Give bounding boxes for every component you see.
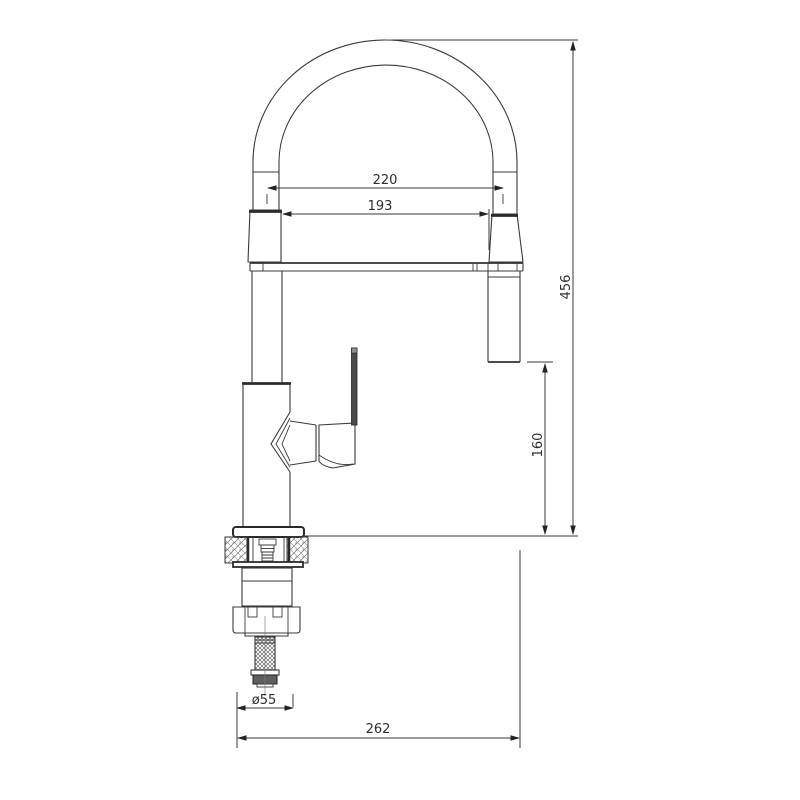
riser-pipe (252, 271, 282, 382)
dim-label-160: 160 (531, 433, 546, 458)
spout-support-bar (250, 263, 523, 271)
dimension-spray-outlet-height: 160 (527, 362, 553, 535)
dimension-overall-reach: 262 (237, 550, 520, 748)
handle-lever (352, 348, 358, 425)
dimension-overall-height: 456 (391, 40, 578, 535)
spray-head-lower (488, 271, 520, 362)
body-joint-contour (271, 412, 290, 472)
dim-label-262: 262 (366, 722, 391, 737)
handle-lever-cap (352, 348, 358, 353)
washer-plate (233, 562, 303, 567)
dimension-hose-span: 220 (267, 173, 504, 191)
shank-cup (242, 568, 292, 606)
faucet-technical-drawing: 220 193 (0, 0, 800, 800)
dim-label-diameter-55: ø55 (252, 693, 277, 708)
base-flange (233, 527, 304, 537)
dimension-spout-inner-width: 193 (282, 199, 489, 250)
spout-nozzle-holder (248, 210, 282, 262)
faucet-body (242, 384, 355, 529)
dim-label-220: 220 (373, 173, 398, 188)
clamp-fitting (259, 539, 276, 561)
handle-cartridge-housing (290, 421, 355, 468)
faucet-technical-drawing-page: 220 193 (0, 0, 800, 800)
mounting-nut (233, 607, 300, 636)
dim-label-456: 456 (559, 275, 574, 300)
spray-head-upper (489, 214, 523, 262)
dim-label-193: 193 (368, 199, 393, 214)
countertop-section (225, 536, 578, 563)
